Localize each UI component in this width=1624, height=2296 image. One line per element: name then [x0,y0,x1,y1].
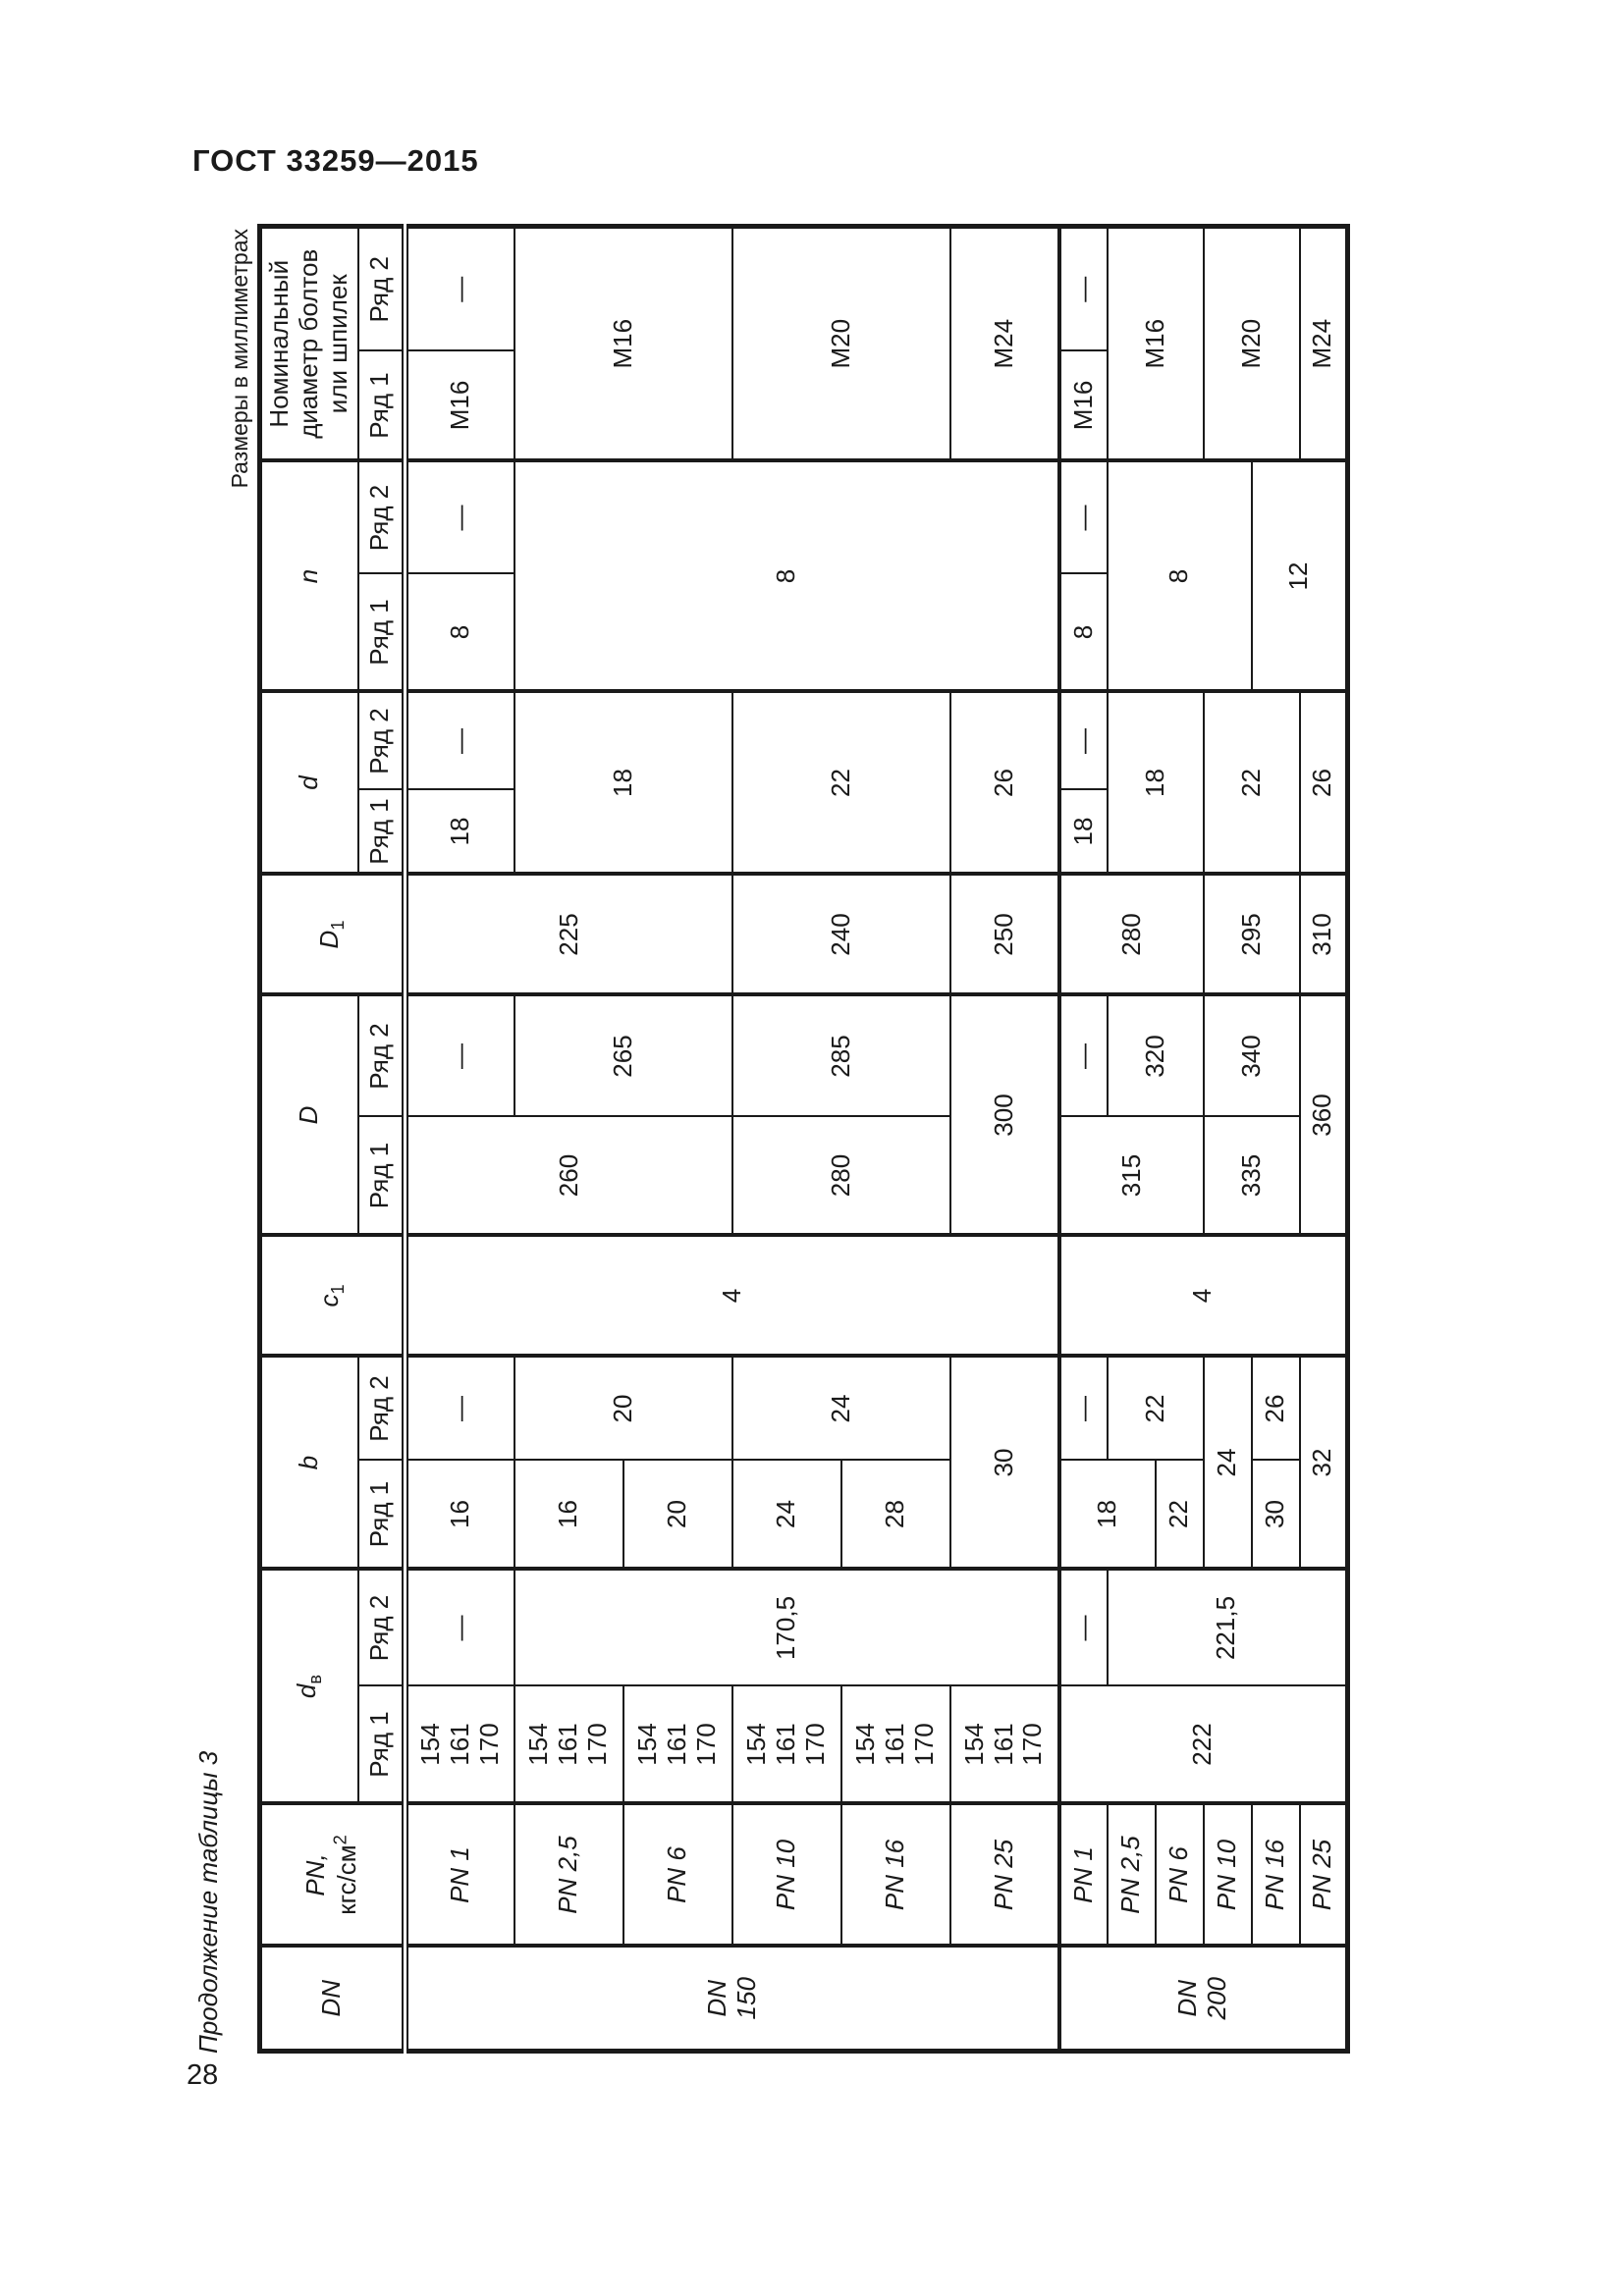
cell-150-D1-pn10-16: 240 [732,874,950,994]
cell-150-pn16-b-r1: 28 [841,1460,950,1569]
header-d: d [260,691,358,874]
cell-200-pn1-d-r1: 18 [1059,789,1108,874]
cell-200-bolt-pn25-6: M16 [1108,226,1204,460]
cell-200-pn25b-bolt: M24 [1300,226,1348,460]
cell-150-pn1-n-r2: — [406,460,514,573]
cell-150-pn25b-bolt: M24 [950,226,1059,460]
cell-150-pn25b-dv-r1: 154161170 [950,1686,1059,1804]
cell-200-D-r1-pn10-16: 335 [1204,1116,1300,1235]
cell-150-c1: 4 [406,1235,1059,1356]
header-pn: PN, кгс/см2 [260,1804,406,1947]
header-b-row2: Ряд 2 [358,1356,406,1460]
header-D-row2: Ряд 2 [358,994,406,1116]
cell-150-pn1-d-r1: 18 [406,789,514,874]
header-row-ryad: Ряд 1 Ряд 2 Ряд 1 Ряд 2 Ряд 1 Ряд 2 Ряд … [358,226,406,2051]
header-bolt-row2: Ряд 2 [358,226,406,350]
cell-200-pn1-dv-r2: — [1059,1569,1108,1685]
cell-150-D-r1-pn10-16: 280 [732,1116,950,1235]
header-bolt-diameter: Номинальный диаметр болтов или шпилек [260,226,358,460]
cell-150-dv-r2-merged: 170,5 [514,1569,1059,1685]
units-caption: Размеры в миллиметрах [225,229,254,2054]
cell-150-pn1: PN 1 [406,1804,514,1947]
cell-150-pn1-dv-r1: 154161170 [406,1686,514,1804]
header-bolt-row1: Ряд 1 [358,350,406,460]
cell-200-n-pn16-25: 12 [1252,460,1348,691]
page-number: 28 [187,2059,218,2092]
cell-150-pn1-d-r2: — [406,691,514,789]
cell-150-bolt-pn25-6: M16 [514,226,732,460]
header-pn-line1: PN, [300,1853,330,1896]
cell-150-pn6-dv-r1: 154161170 [623,1686,732,1804]
cell-200-pn16: PN 16 [1252,1804,1300,1947]
cell-150-pn10-b-r1: 24 [732,1460,841,1569]
cell-200-D1-pn1-6: 280 [1059,874,1204,994]
cell-200-pn25b-b: 32 [1300,1356,1348,1569]
header-n: n [260,460,358,691]
cell-200-pn25: PN 2,5 [1108,1804,1156,1947]
cell-150-pn25: PN 2,5 [514,1804,623,1947]
header-dv: dв [260,1569,358,1803]
cell-200-D-r2-pn25-6: 320 [1108,994,1204,1116]
header-pn-unit: кгс/см2 [332,1835,361,1915]
cell-200-dn: DN200 [1059,1947,1348,2052]
cell-150-d-pn10-16: 22 [732,691,950,874]
cell-200-pn10-b: 24 [1204,1356,1252,1569]
cell-150-bolt-pn10-16: M20 [732,226,950,460]
cell-200-pn10: PN 10 [1204,1804,1252,1947]
cell-200-d-pn25-6: 18 [1108,691,1204,874]
cell-150-b-r2-pn25-6: 20 [514,1356,732,1460]
document-page: ГОСТ 33259—2015 28 Продолжение таблицы 3… [0,0,1624,2296]
cell-150-pn1-D-r2: — [406,994,514,1116]
header-dn: DN [260,1947,406,2052]
cell-200-pn1-D-r2: — [1059,994,1108,1116]
cell-150-pn25b-D1: 250 [950,874,1059,994]
cell-200-pn16-b-r1: 30 [1252,1460,1300,1569]
cell-200-D1-pn10-16: 295 [1204,874,1300,994]
cell-150-pn25b-D: 300 [950,994,1059,1235]
cell-150-pn1-b-r2: — [406,1356,514,1460]
table-row: DN150 PN 1 154161170 — 16 — 4 260 — 225 … [406,226,514,2051]
cell-150-pn1-dv-r2: — [406,1569,514,1685]
header-n-row2: Ряд 2 [358,460,406,573]
cell-200-pn16-b-r2: 26 [1252,1356,1300,1460]
cell-150-pn25-b-r1: 16 [514,1460,623,1569]
cell-150-pn1-bolt-r2: — [406,226,514,350]
cell-200-pn25b-D: 360 [1300,994,1348,1235]
header-D: D [260,994,358,1235]
cell-150-dn: DN150 [406,1947,1059,2052]
table-continuation-caption: Продолжение таблицы 3 [191,229,225,2054]
cell-150-pn6-b-r1: 20 [623,1460,732,1569]
cell-150-pn16: PN 16 [841,1804,950,1947]
header-n-row1: Ряд 1 [358,573,406,691]
cell-200-pn6-b-r1: 22 [1156,1460,1204,1569]
header-row-main: DN PN, кгс/см2 dв b c1 D D1 d n Номиналь… [260,226,358,2051]
rotated-table-block: Продолжение таблицы 3 Размеры в миллимет… [191,229,1337,2054]
cell-200-pn1-d-r2: — [1059,691,1108,789]
header-b-row1: Ряд 1 [358,1460,406,1569]
header-dv-row1: Ряд 1 [358,1686,406,1804]
header-dv-row2: Ряд 2 [358,1569,406,1685]
cell-200-d-pn10-16: 22 [1204,691,1300,874]
table-row: DN200 PN 1 222 — 18 — 4 315 — 280 18 — 8… [1059,226,1108,2051]
cell-200-pn1-b-r2: — [1059,1356,1108,1460]
cell-150-b-r2-pn10-16: 24 [732,1356,950,1460]
cell-200-D-r2-pn10-16: 340 [1204,994,1300,1116]
header-D-row1: Ряд 1 [358,1116,406,1235]
cell-150-pn16-dv-r1: 154161170 [841,1686,950,1804]
cell-150-pn10-dv-r1: 154161170 [732,1686,841,1804]
cell-150-D1-pn1-6: 225 [406,874,732,994]
cell-200-pn25b: PN 25 [1300,1804,1348,1947]
cell-150-n-merged: 8 [514,460,1059,691]
header-d-row2: Ряд 2 [358,691,406,789]
header-c1: c1 [260,1235,406,1356]
cell-200-pn25b-D1: 310 [1300,874,1348,994]
cell-200-pn1-bolt-r2: — [1059,226,1108,350]
cell-150-pn1-b-r1: 16 [406,1460,514,1569]
cell-150-pn6: PN 6 [623,1804,732,1947]
cell-200-dv-r1-merged: 222 [1059,1686,1348,1804]
cell-200-n-pn25-10: 8 [1108,460,1252,691]
standard-title: ГОСТ 33259—2015 [192,143,479,179]
cell-200-D-r1-pn1-6: 315 [1059,1116,1204,1235]
cell-200-pn1-n-r2: — [1059,460,1108,573]
cell-150-d-pn25-6: 18 [514,691,732,874]
cell-200-pn6: PN 6 [1156,1804,1204,1947]
cell-200-pn1: PN 1 [1059,1804,1108,1947]
cell-150-pn1-n-r1: 8 [406,573,514,691]
cell-200-b-r2-pn25-6: 22 [1108,1356,1204,1460]
cell-200-b-r1-pn1-25: 18 [1059,1460,1156,1569]
header-d-row1: Ряд 1 [358,789,406,874]
cell-150-D-r2-pn10-16: 285 [732,994,950,1116]
cell-150-pn25b-b: 30 [950,1356,1059,1569]
cell-200-bolt-pn10-16: M20 [1204,226,1300,460]
cell-150-pn25b: PN 25 [950,1804,1059,1947]
cell-200-c1: 4 [1059,1235,1348,1356]
cell-200-pn1-n-r1: 8 [1059,573,1108,691]
cell-150-pn25b-d: 26 [950,691,1059,874]
header-b: b [260,1356,358,1569]
flange-dimensions-table: DN PN, кгс/см2 dв b c1 D D1 d n Номиналь… [257,224,1350,2054]
cell-200-dv-r2-merged: 221,5 [1108,1569,1348,1685]
header-D1: D1 [260,874,406,994]
cell-200-pn25b-d: 26 [1300,691,1348,874]
cell-150-pn25-dv-r1: 154161170 [514,1686,623,1804]
cell-200-pn1-bolt-r1: M16 [1059,350,1108,460]
cell-150-pn10: PN 10 [732,1804,841,1947]
cell-150-pn1-bolt-r1: M16 [406,350,514,460]
cell-150-D-r1-pn1-6: 260 [406,1116,732,1235]
cell-150-D-r2-pn25-6: 265 [514,994,732,1116]
